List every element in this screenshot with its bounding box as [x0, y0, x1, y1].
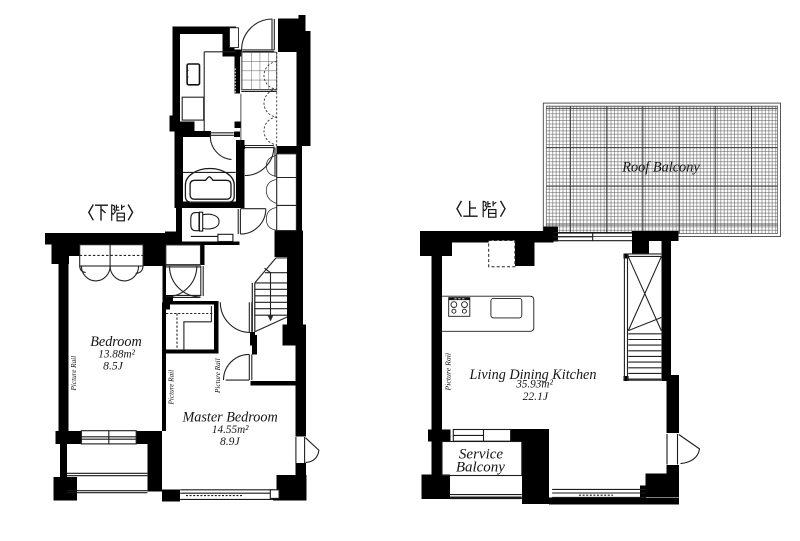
svg-text:35.93m²: 35.93m²	[515, 379, 553, 391]
svg-text:Bedroom: Bedroom	[90, 334, 142, 350]
svg-text:Roof Balcony: Roof Balcony	[621, 159, 700, 175]
svg-text:Picture Rail: Picture Rail	[214, 358, 222, 394]
svg-text:Picture Rail: Picture Rail	[168, 370, 176, 406]
svg-text:Master Bedroom: Master Bedroom	[181, 409, 277, 425]
svg-text:Balcony: Balcony	[456, 459, 505, 475]
svg-text:Picture Rail: Picture Rail	[444, 353, 453, 392]
svg-text:8.9J: 8.9J	[220, 435, 240, 448]
svg-text:Picture Rail: Picture Rail	[70, 356, 78, 392]
svg-text:8.5J: 8.5J	[103, 360, 123, 373]
svg-text:22.1J: 22.1J	[523, 390, 549, 403]
